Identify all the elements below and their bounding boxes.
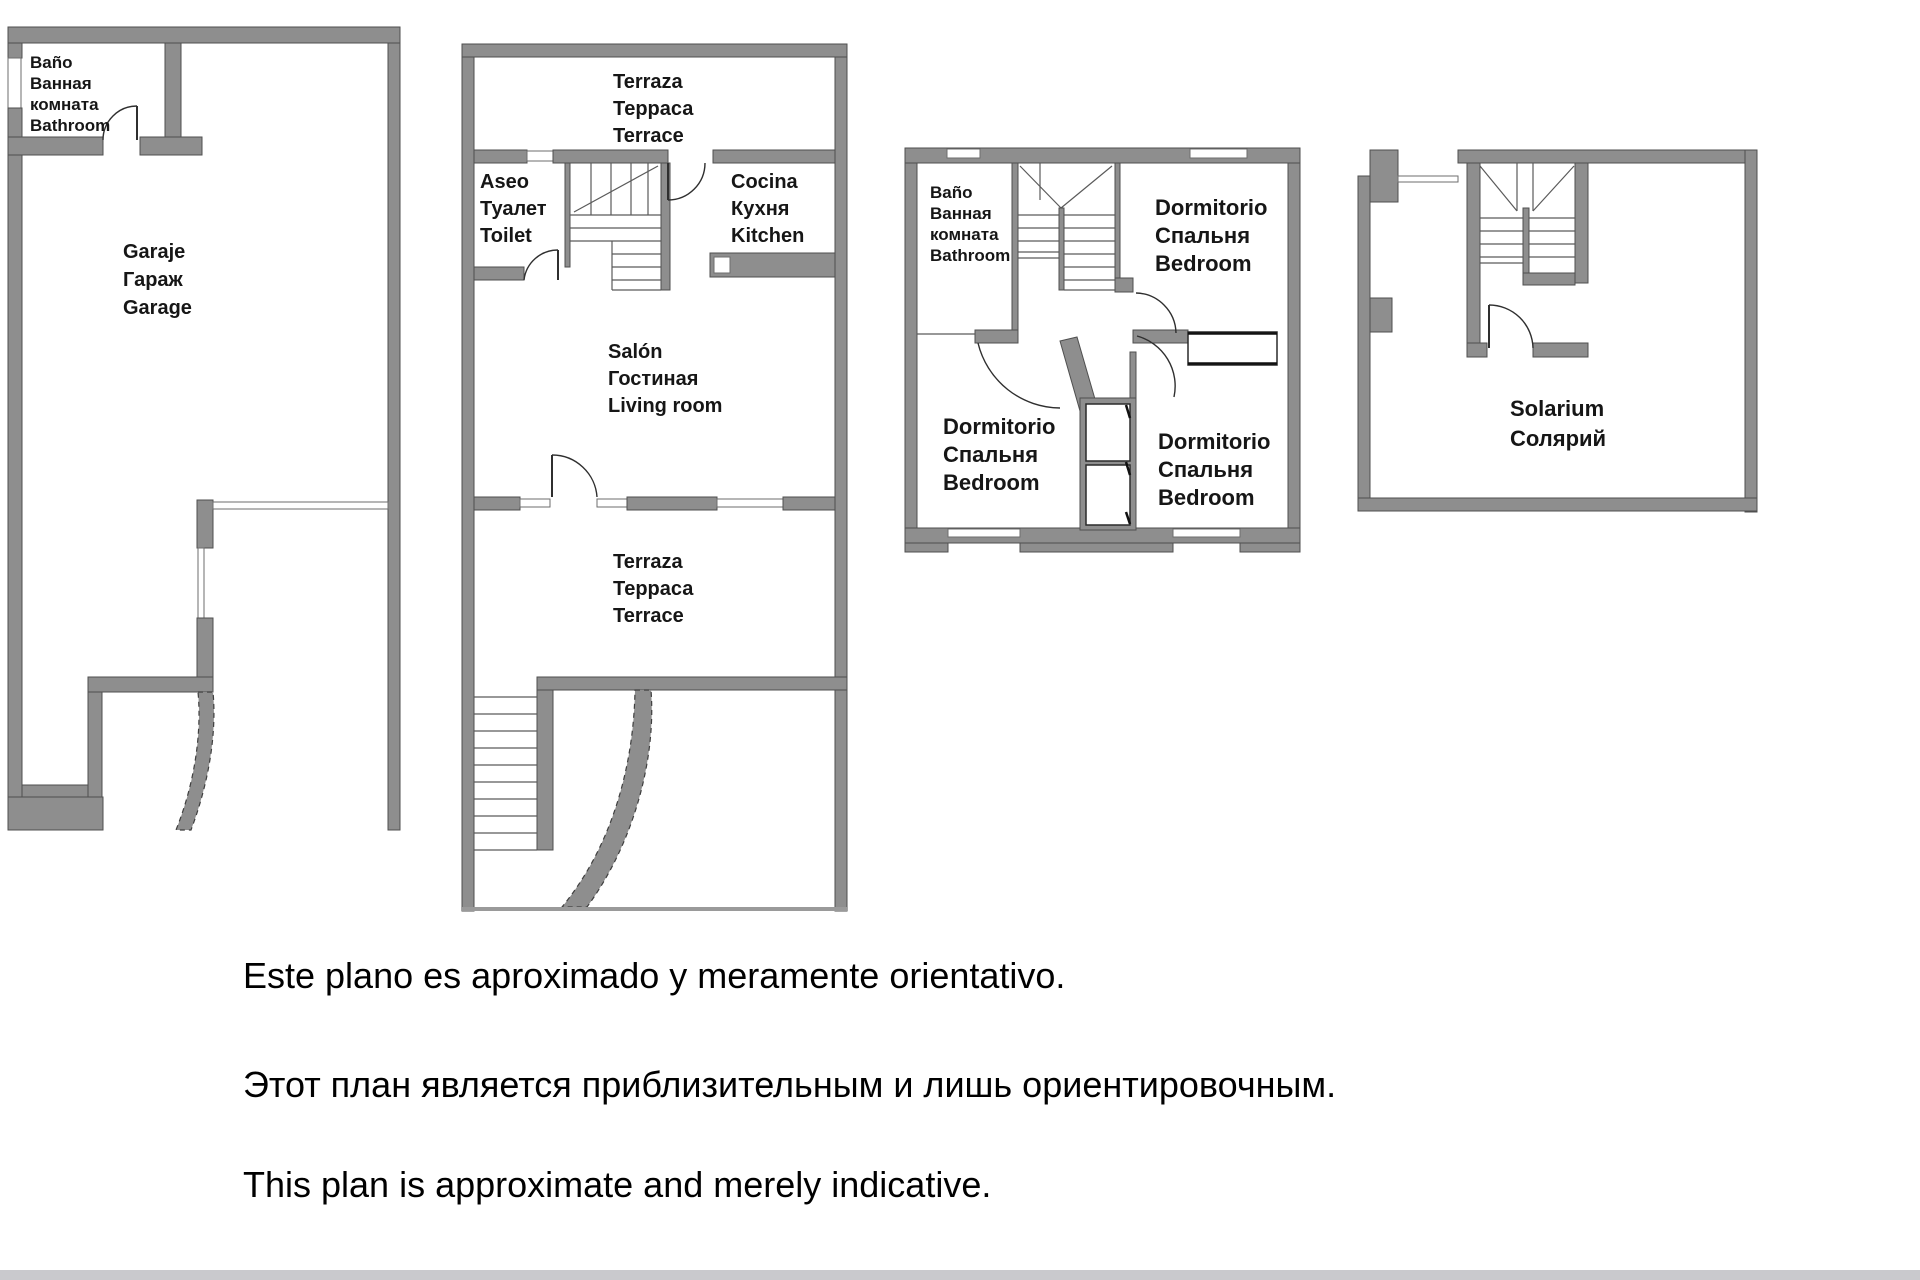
wall: [1467, 343, 1487, 357]
room-label-line: Terrace: [613, 605, 684, 627]
room-label-line: Dormitorio: [943, 414, 1055, 439]
room-label-line: Bathroom: [930, 246, 1010, 265]
room-label-line: Dormitorio: [1155, 195, 1267, 220]
wall: [474, 497, 520, 510]
room-label-line: Терраса: [613, 98, 694, 120]
room-label-line: комната: [930, 225, 999, 244]
door-arc: [1489, 305, 1533, 348]
window: [947, 149, 980, 158]
wall: [1288, 163, 1300, 543]
room-label-line: Ванная: [30, 74, 92, 93]
sink: [714, 257, 730, 273]
bedroom-bathroom-label: Baño Ванная комната Bathroom: [930, 183, 1010, 265]
window: [1398, 176, 1458, 182]
stair-winder-diagonal: [1061, 166, 1112, 208]
wall: [537, 677, 847, 690]
wall: [8, 108, 22, 830]
plan-bedroom-floor: Baño Ванная комната Bathroom Dormitorio …: [905, 148, 1300, 552]
garage-bathroom-label: Baño Ванная комната Bathroom: [30, 53, 110, 135]
room-label-line: Terraza: [613, 551, 684, 573]
door-arc: [552, 455, 597, 497]
wall: [565, 163, 570, 267]
room-label-line: Кухня: [731, 198, 789, 220]
terrace-bottom-label: Terraza Терраса Terrace: [613, 551, 694, 627]
room-label-line: Baño: [930, 183, 973, 202]
room-label-line: комната: [30, 95, 99, 114]
wall: [1533, 343, 1588, 357]
room-label-line: Kitchen: [731, 225, 804, 247]
window: [213, 502, 388, 509]
window: [520, 499, 550, 507]
wall-pier: [1240, 543, 1300, 552]
window: [198, 548, 204, 618]
wall: [1358, 176, 1370, 510]
door-arc: [1136, 293, 1176, 333]
floorplan-page: Baño Ванная комната Bathroom Garaje Гара…: [0, 0, 1920, 1280]
curved-driveway-wall: [562, 690, 652, 907]
wall: [975, 330, 1018, 343]
kitchen-label: Cocina Кухня Kitchen: [731, 171, 804, 247]
room-label-line: Solarium: [1510, 396, 1604, 421]
wall: [88, 677, 213, 692]
room-label-line: Cocina: [731, 171, 799, 193]
room-label-line: Bedroom: [943, 470, 1040, 495]
window: [527, 151, 553, 161]
terrace-stairs: [474, 697, 537, 850]
window: [948, 529, 1020, 537]
room-label-line: Bedroom: [1155, 251, 1252, 276]
room-label-line: Солярий: [1510, 426, 1606, 451]
bedroom-bottom-left-label: Dormitorio Спальня Bedroom: [943, 414, 1055, 495]
wall: [1115, 163, 1120, 278]
door-leaf: [1130, 352, 1136, 398]
wall: [1358, 498, 1757, 511]
wall: [474, 267, 524, 280]
wall: [22, 785, 88, 797]
wall: [835, 57, 847, 911]
room-label-line: Garage: [123, 297, 192, 319]
garage-label: Garaje Гараж Garage: [123, 241, 192, 319]
room-label-line: Туалет: [480, 198, 547, 220]
room-label-line: Гараж: [123, 269, 184, 291]
door-arc: [1137, 336, 1175, 397]
wall: [1370, 150, 1398, 202]
room-label-line: Bathroom: [30, 116, 110, 135]
wall: [1012, 163, 1018, 330]
stair-winder-diagonal: [574, 166, 658, 212]
window: [717, 499, 783, 507]
disclaimer-ru: Этот план является приблизительным и лиш…: [243, 1064, 1336, 1105]
wall: [553, 150, 668, 163]
living-room-label: Salón Гостиная Living room: [608, 341, 722, 417]
door-arc: [978, 343, 1060, 408]
bedroom-floor-stairs: [1018, 163, 1115, 290]
wall: [8, 27, 400, 43]
floorplan-drawing: Baño Ванная комната Bathroom Garaje Гара…: [0, 0, 1920, 1280]
interior-stairs: [570, 163, 661, 290]
plan-garage-floor: Baño Ванная комната Bathroom Garaje Гара…: [8, 27, 400, 830]
wall: [1467, 163, 1480, 357]
curved-driveway-wall: [176, 692, 214, 830]
wall: [8, 43, 22, 58]
wall: [713, 150, 835, 163]
disclaimer-en: This plan is approximate and merely indi…: [243, 1164, 991, 1205]
wall: [88, 692, 102, 797]
solarium-walls: [1358, 150, 1757, 512]
wall-pier: [905, 543, 948, 552]
bedroom-top-right-label: Dormitorio Спальня Bedroom: [1155, 195, 1267, 276]
wall: [1575, 163, 1588, 283]
wall: [462, 44, 847, 57]
disclaimer: Este plano es aproximado y meramente ori…: [243, 955, 1336, 1205]
door-arc: [668, 163, 705, 200]
room-label-line: Salón: [608, 341, 662, 363]
wardrobe: [1188, 332, 1277, 365]
room-label-line: Toilet: [480, 225, 532, 247]
room-label-line: Ванная: [930, 204, 992, 223]
stair-divider: [1523, 208, 1529, 273]
room-label-line: Terraza: [613, 71, 684, 93]
wall: [1523, 273, 1575, 285]
stair-winder-diagonal: [1480, 166, 1517, 211]
stair-divider: [1059, 208, 1064, 290]
wall: [1115, 278, 1133, 292]
wall: [905, 163, 917, 543]
room-label-line: Aseo: [480, 171, 529, 193]
room-label-line: Спальня: [1158, 457, 1253, 482]
room-label-line: Dormitorio: [1158, 429, 1270, 454]
wall: [1745, 150, 1757, 512]
disclaimer-es: Este plano es aproximado y meramente ori…: [243, 955, 1065, 996]
bottom-bar: [0, 1270, 1920, 1280]
door-arc: [524, 250, 558, 280]
room-label-line: Спальня: [1155, 223, 1250, 248]
wall-pier: [1370, 298, 1392, 332]
plan-main-floor: Terraza Терраса Terrace Aseo Туалет Toil…: [462, 44, 847, 911]
toilet-label: Aseo Туалет Toilet: [480, 171, 547, 247]
window: [597, 499, 627, 507]
wall: [140, 137, 202, 155]
room-label-line: Спальня: [943, 442, 1038, 467]
solarium-stairs: [1480, 163, 1575, 273]
window: [1190, 149, 1247, 158]
window: [1173, 529, 1240, 537]
terrace-top-label: Terraza Терраса Terrace: [613, 71, 694, 147]
wall: [197, 500, 213, 548]
closet-compartment: [1086, 465, 1130, 525]
room-label-line: Терраса: [613, 578, 694, 600]
solarium-door: [1489, 305, 1533, 348]
solarium-label: Solarium Солярий: [1510, 396, 1606, 451]
wall: [537, 690, 553, 850]
closet-compartment: [1086, 404, 1130, 461]
wall: [1133, 330, 1188, 343]
room-label-line: Garaje: [123, 241, 185, 263]
main-floor-doors: [524, 163, 705, 497]
wall: [388, 43, 400, 830]
wall: [627, 497, 717, 510]
plot-line: [462, 907, 847, 911]
wall: [474, 150, 527, 163]
wall-pier: [1020, 543, 1173, 552]
room-label-line: Bedroom: [1158, 485, 1255, 510]
window: [8, 58, 21, 108]
room-label-line: Гостиная: [608, 368, 698, 390]
wall: [1458, 150, 1757, 163]
stair-winder-diagonal: [1533, 166, 1574, 211]
wall: [462, 57, 474, 911]
kitchen-counter: [710, 253, 835, 277]
wall: [8, 797, 103, 830]
wall: [8, 137, 103, 155]
wall: [783, 497, 835, 510]
plan-solarium-floor: Solarium Солярий: [1358, 150, 1757, 512]
bedroom-bottom-right-label: Dormitorio Спальня Bedroom: [1158, 429, 1270, 510]
room-label-line: Terrace: [613, 125, 684, 147]
garage-walls: [8, 27, 400, 830]
room-label-line: Baño: [30, 53, 73, 72]
room-label-line: Living room: [608, 395, 722, 417]
wall: [165, 43, 181, 137]
